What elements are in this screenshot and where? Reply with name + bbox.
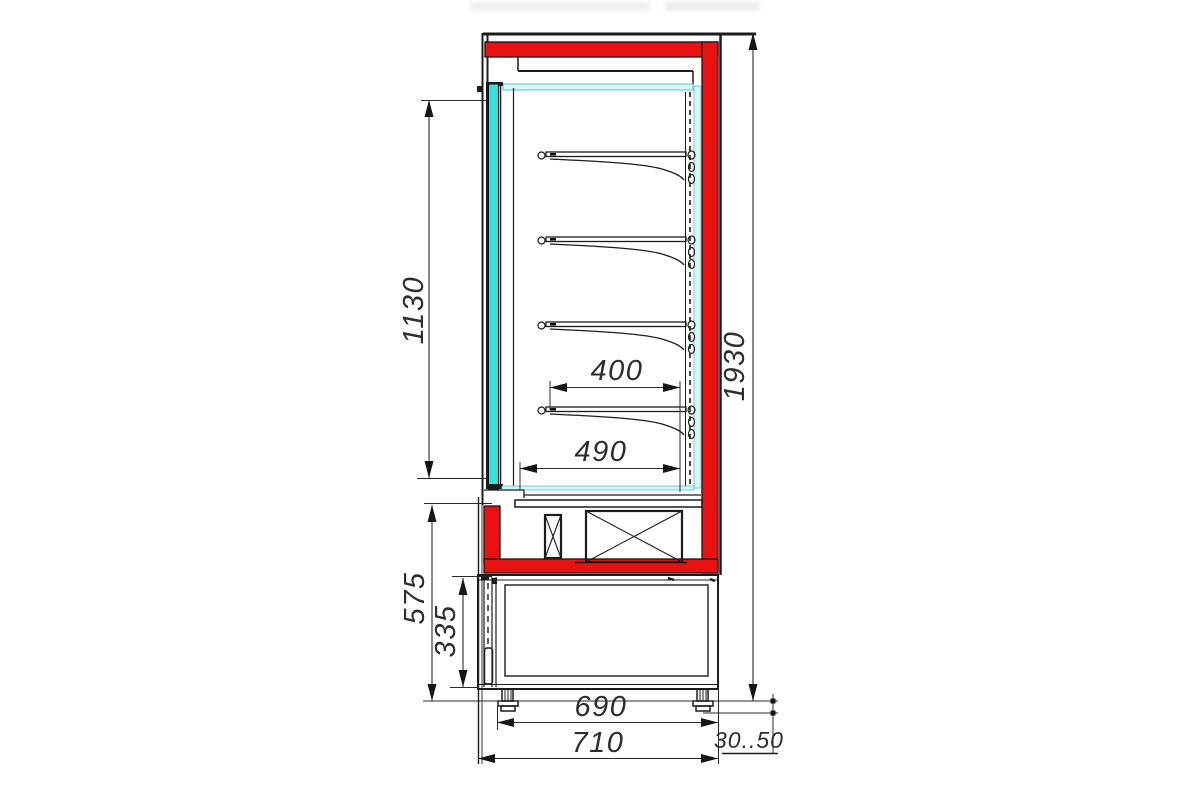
dim-label-shelf-depth: 400 <box>591 355 644 387</box>
dim-overall-depth: 710 <box>478 727 718 763</box>
dim-foot-range: 30..50 <box>714 694 784 754</box>
shelf-1-front-curl <box>538 152 545 159</box>
compartment-box <box>478 575 718 689</box>
shelf-2-board <box>546 237 686 242</box>
shelves <box>538 151 695 439</box>
shelf-4-bracket <box>550 414 684 435</box>
dim-opening-height: 1130 <box>398 100 434 478</box>
compartment-panel <box>505 585 708 676</box>
dim-label-overall-depth: 710 <box>572 727 625 759</box>
deck-light-strip <box>502 486 694 490</box>
shelf-2 <box>538 236 695 269</box>
shelf-2-bracket <box>550 244 684 265</box>
canopy <box>503 57 693 90</box>
dim-compartment-height: 335 <box>430 578 468 687</box>
screw-mark-2 <box>710 579 715 581</box>
dim-lower-height: 575 <box>399 505 437 701</box>
dim-label-overall-height: 1930 <box>719 331 751 402</box>
shelf-4-board <box>546 407 686 412</box>
base-deck <box>484 486 702 507</box>
glass-pane <box>489 84 499 489</box>
shelf-4 <box>538 406 695 439</box>
shelf-2-front-curl <box>538 237 545 244</box>
dim-base-depth: 490 <box>520 436 680 473</box>
dimensions: 1130 1930 400 490 575 <box>398 33 784 764</box>
red-back-panel <box>702 42 718 573</box>
dim-label-base-depth: 490 <box>575 436 628 468</box>
red-top-panel <box>485 42 718 57</box>
shelf-1-board <box>546 152 686 157</box>
front-glass-panel <box>477 82 503 489</box>
foot-left <box>498 689 518 711</box>
shelf-3-front-curl <box>538 322 545 329</box>
shelf-1 <box>538 151 695 184</box>
glass-top-hinge-nub <box>477 86 482 92</box>
deck-panel <box>515 500 702 507</box>
shelf-3 <box>538 321 695 354</box>
top-edge-artifact <box>470 2 760 11</box>
shelf-4-front-curl <box>538 407 545 414</box>
shelf-3-board <box>546 322 686 327</box>
dim-label-foot-range: 30..50 <box>714 727 784 753</box>
dim-shelf-depth: 400 <box>550 355 680 392</box>
dim-label-lower-height: 575 <box>399 572 431 625</box>
technical-drawing-canvas: 1130 1930 400 490 575 <box>0 0 1200 800</box>
glass-bottom-cap <box>486 484 503 489</box>
compartment-door <box>481 575 497 687</box>
shelf-1-bracket <box>550 159 684 180</box>
canopy-light-strip <box>503 84 693 90</box>
shelf-3-bracket <box>550 329 684 350</box>
back-inner-wall-strip <box>694 86 701 488</box>
dim-label-compartment-height: 335 <box>430 605 462 658</box>
dim-label-feet-span: 690 <box>575 691 628 723</box>
red-front-lower-panel <box>484 506 500 563</box>
cabinet-body <box>477 33 756 575</box>
foot-right <box>693 689 713 711</box>
door-handle <box>485 648 493 684</box>
machinery <box>545 511 687 563</box>
dim-label-opening-height: 1130 <box>398 276 430 344</box>
dim-overall-height: 1930 <box>719 33 758 701</box>
dim-feet-span: 690 <box>497 691 718 727</box>
